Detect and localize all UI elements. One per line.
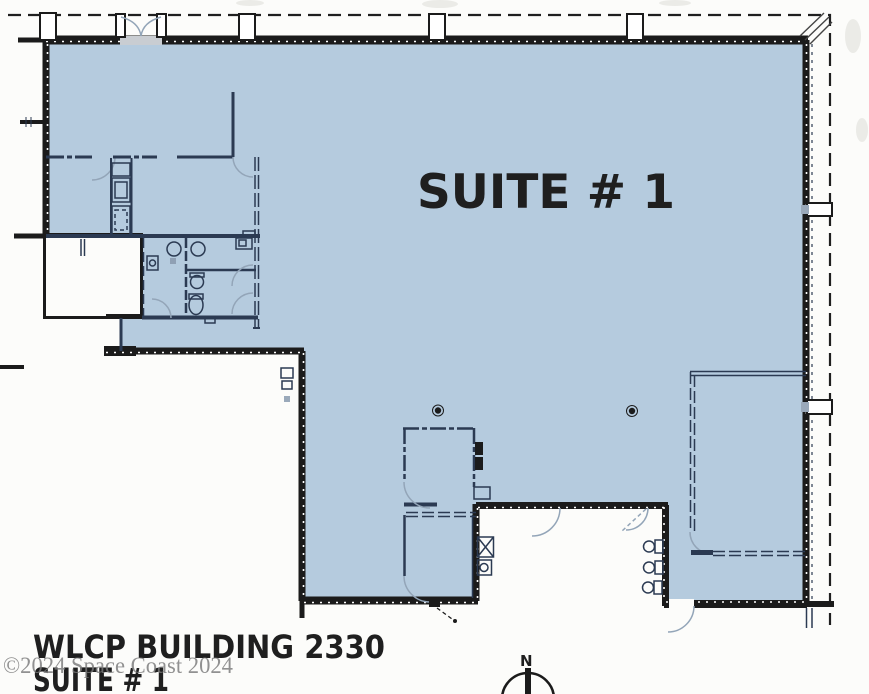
water-heater-icon [478,537,494,557]
electrical-panel-icon [475,442,483,455]
column-dot [435,407,441,413]
compass-needle [525,668,531,694]
north-label: N [520,652,533,670]
alcove-toilet-fixtures [643,540,664,594]
floor-plan-canvas: SUITE # 1 WLCP BUILDING 2330 SUITE # 1 ©… [0,0,869,694]
suite-area [46,40,806,604]
alcove-sink-icon [478,560,492,575]
toilet-icon [643,582,654,593]
toilet-icon [644,541,655,552]
watermark-text: ©2024 Space Coast 2024 [3,653,233,678]
column-dot [629,408,635,414]
toilet-icon [644,562,655,573]
suite-label: SUITE # 1 [417,165,675,220]
corner-hatch [800,13,832,44]
floor-plan-page: SUITE # 1 WLCP BUILDING 2330 SUITE # 1 ©… [0,0,869,694]
north-arrow: N [502,652,554,694]
west-exterior-panels [281,368,293,402]
electrical-panel-icon [475,457,483,470]
entry-double-door [116,14,166,45]
bottom-right-door [668,599,694,632]
entry-alcove [478,508,664,594]
